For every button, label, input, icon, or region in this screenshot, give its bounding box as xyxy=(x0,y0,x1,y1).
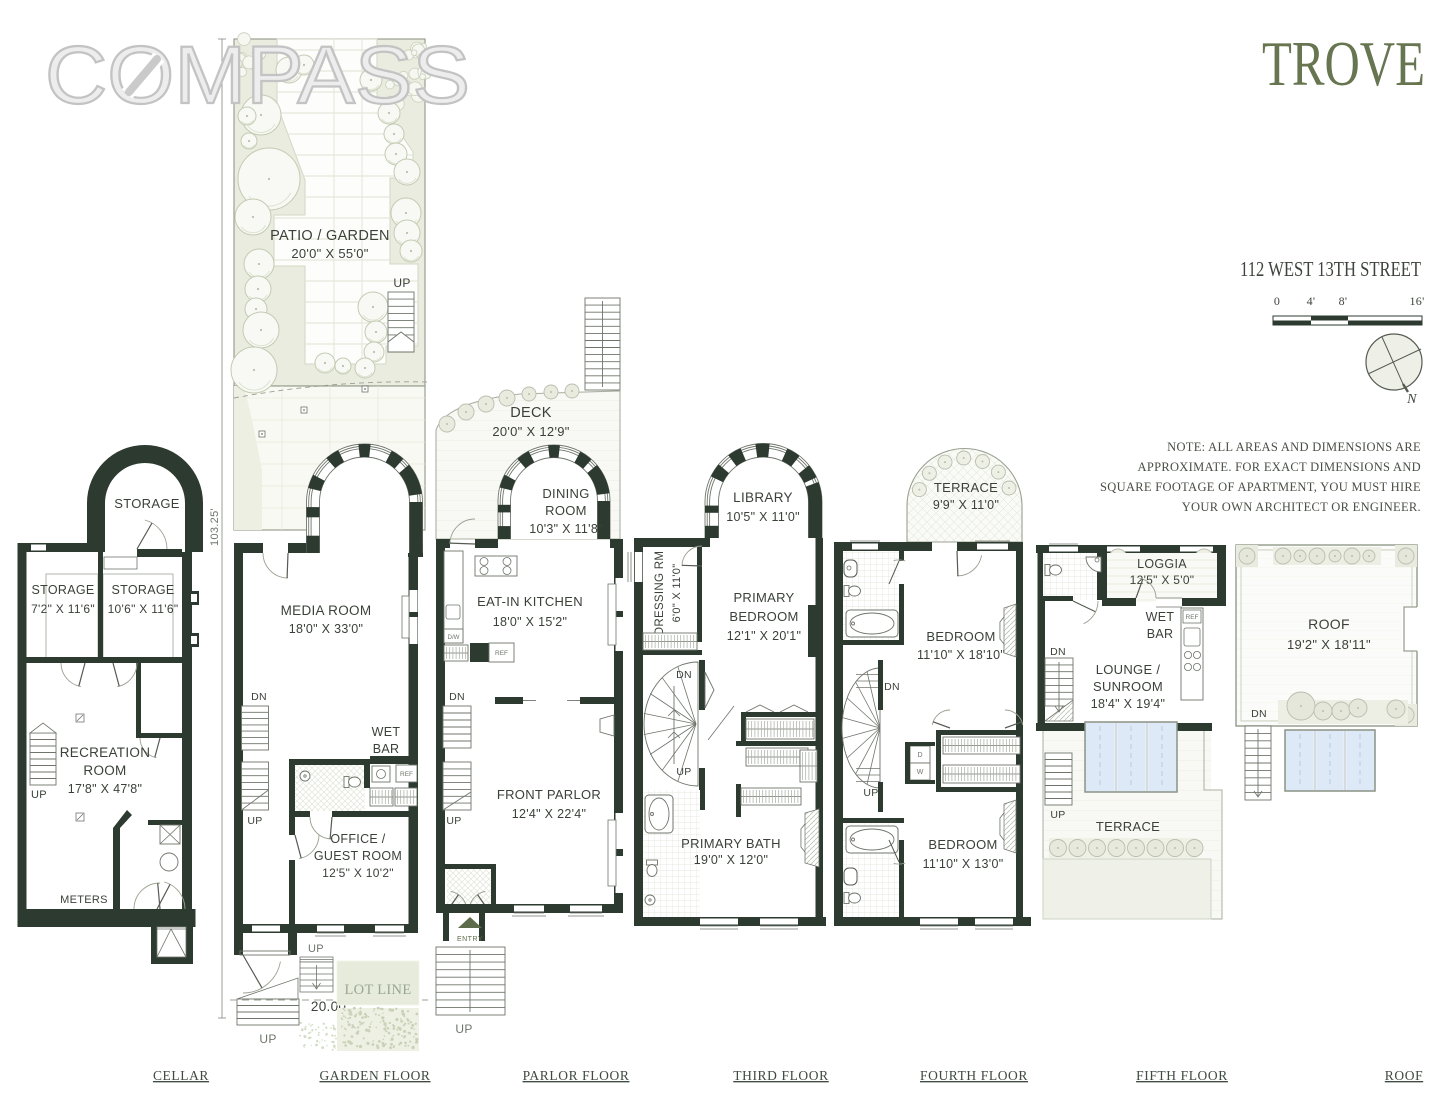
svg-text:TERRACE: TERRACE xyxy=(934,480,998,495)
svg-text:UP: UP xyxy=(676,766,691,778)
svg-text:12'5" X 10'2": 12'5" X 10'2" xyxy=(322,866,394,880)
svg-text:NOTE: ALL AREAS AND DIMENSIONS: NOTE: ALL AREAS AND DIMENSIONS ARE xyxy=(1167,440,1421,454)
svg-text:STORAGE: STORAGE xyxy=(114,496,179,511)
svg-text:METERS: METERS xyxy=(60,894,108,906)
svg-text:UP: UP xyxy=(1050,809,1065,821)
svg-text:DN: DN xyxy=(449,691,465,703)
svg-text:UP: UP xyxy=(393,276,410,290)
svg-text:COMPASS: COMPASS xyxy=(45,30,470,121)
svg-text:FRONT PARLOR: FRONT PARLOR xyxy=(497,787,601,802)
svg-text:UP: UP xyxy=(863,787,878,799)
svg-text:ENTRY: ENTRY xyxy=(457,936,483,943)
svg-text:DN: DN xyxy=(884,681,900,693)
svg-text:12'5" X 5'0": 12'5" X 5'0" xyxy=(1130,573,1195,587)
svg-text:16': 16' xyxy=(1409,294,1424,308)
svg-text:FOURTH FLOOR: FOURTH FLOOR xyxy=(920,1068,1028,1083)
svg-text:W: W xyxy=(917,769,924,776)
svg-text:10'6" X 11'6": 10'6" X 11'6" xyxy=(108,602,179,616)
svg-text:BEDROOM: BEDROOM xyxy=(926,629,995,644)
svg-text:DINING: DINING xyxy=(542,486,589,501)
svg-text:112 WEST 13TH STREET: 112 WEST 13TH STREET xyxy=(1240,257,1421,281)
svg-text:BEDROOM: BEDROOM xyxy=(928,837,997,852)
svg-text:DN: DN xyxy=(676,669,692,681)
svg-text:D/W: D/W xyxy=(447,634,459,641)
svg-text:REF: REF xyxy=(1186,614,1199,621)
svg-text:TERRACE: TERRACE xyxy=(1096,819,1160,834)
svg-text:DECK: DECK xyxy=(510,405,552,421)
svg-text:UP: UP xyxy=(446,815,461,827)
svg-text:BEDROOM: BEDROOM xyxy=(729,609,798,624)
svg-text:STORAGE: STORAGE xyxy=(112,583,175,597)
svg-text:20'0" X 55'0": 20'0" X 55'0" xyxy=(291,246,368,261)
svg-text:PATIO / GARDEN: PATIO / GARDEN xyxy=(270,228,390,244)
svg-text:PRIMARY: PRIMARY xyxy=(733,590,794,605)
svg-text:12'4" X 22'4": 12'4" X 22'4" xyxy=(512,807,587,821)
svg-text:ROOM: ROOM xyxy=(83,763,126,778)
svg-text:ROOF: ROOF xyxy=(1385,1068,1423,1083)
svg-text:BAR: BAR xyxy=(1147,627,1174,641)
svg-text:OFFICE /: OFFICE / xyxy=(330,832,385,846)
svg-text:REF: REF xyxy=(495,650,508,657)
svg-text:WET: WET xyxy=(372,725,401,739)
svg-text:YOUR OWN ARCHITECT OR ENGINEER: YOUR OWN ARCHITECT OR ENGINEER. xyxy=(1182,500,1421,514)
svg-text:FIFTH FLOOR: FIFTH FLOOR xyxy=(1136,1068,1228,1083)
svg-text:MEDIA ROOM: MEDIA ROOM xyxy=(281,603,372,618)
svg-text:PARLOR FLOOR: PARLOR FLOOR xyxy=(523,1068,630,1083)
svg-text:GARDEN FLOOR: GARDEN FLOOR xyxy=(319,1068,430,1083)
svg-text:LIBRARY: LIBRARY xyxy=(733,490,793,505)
svg-text:ROOM: ROOM xyxy=(545,503,587,518)
svg-text:DN: DN xyxy=(1050,646,1066,658)
svg-text:BAR: BAR xyxy=(373,742,400,756)
svg-text:WET: WET xyxy=(1146,610,1175,624)
svg-text:CELLAR: CELLAR xyxy=(153,1068,209,1083)
svg-text:LOUNGE /: LOUNGE / xyxy=(1096,662,1161,677)
svg-text:RECREATION: RECREATION xyxy=(60,745,151,760)
svg-text:10'5" X 11'0": 10'5" X 11'0" xyxy=(726,510,800,524)
svg-text:19'0" X 12'0": 19'0" X 12'0" xyxy=(694,853,769,867)
svg-text:103.25': 103.25' xyxy=(209,508,221,546)
svg-text:SUNROOM: SUNROOM xyxy=(1093,679,1163,694)
svg-text:20'0" X 12'9": 20'0" X 12'9" xyxy=(492,424,569,439)
svg-text:6'0" X 11'0": 6'0" X 11'0" xyxy=(671,564,683,623)
svg-text:18'4" X 19'4": 18'4" X 19'4" xyxy=(1091,697,1166,711)
svg-text:DRESSING RM: DRESSING RM xyxy=(654,551,666,635)
svg-text:10'3" X 11'8": 10'3" X 11'8" xyxy=(529,522,603,536)
svg-text:SQUARE FOOTAGE OF APARTMENT, Y: SQUARE FOOTAGE OF APARTMENT, YOU MUST HI… xyxy=(1100,480,1421,494)
svg-text:REF: REF xyxy=(400,771,413,778)
svg-text:18'0" X 15'2": 18'0" X 15'2" xyxy=(493,615,568,629)
svg-text:18'0" X 33'0": 18'0" X 33'0" xyxy=(289,622,364,636)
svg-text:17'8" X 47'8": 17'8" X 47'8" xyxy=(68,782,143,796)
svg-text:THIRD FLOOR: THIRD FLOOR xyxy=(733,1068,828,1083)
svg-text:11'10" X 13'0": 11'10" X 13'0" xyxy=(923,857,1004,871)
svg-text:D: D xyxy=(917,752,922,759)
svg-text:PRIMARY BATH: PRIMARY BATH xyxy=(681,836,781,851)
svg-text:11'10" X 18'10": 11'10" X 18'10" xyxy=(917,648,1005,662)
svg-text:7'2" X 11'6": 7'2" X 11'6" xyxy=(31,602,95,616)
svg-text:N: N xyxy=(1406,392,1417,407)
svg-text:0: 0 xyxy=(1274,294,1280,308)
svg-text:DN: DN xyxy=(1251,708,1267,720)
svg-text:UP: UP xyxy=(259,1032,276,1046)
svg-text:UP: UP xyxy=(455,1022,472,1036)
svg-text:UP: UP xyxy=(247,815,262,827)
svg-text:TROVE: TROVE xyxy=(1262,28,1425,99)
svg-text:GUEST ROOM: GUEST ROOM xyxy=(314,849,402,863)
svg-text:APPROXIMATE. FOR EXACT DIMENSI: APPROXIMATE. FOR EXACT DIMENSIONS AND xyxy=(1138,460,1421,474)
svg-text:19'2" X 18'11": 19'2" X 18'11" xyxy=(1287,637,1371,652)
svg-text:DN: DN xyxy=(251,691,267,703)
svg-text:4': 4' xyxy=(1307,294,1316,308)
svg-text:UP: UP xyxy=(31,789,47,801)
svg-text:ROOF: ROOF xyxy=(1308,616,1350,632)
svg-text:LOGGIA: LOGGIA xyxy=(1137,557,1187,571)
svg-text:LOT LINE: LOT LINE xyxy=(345,982,412,998)
svg-text:8': 8' xyxy=(1339,294,1348,308)
svg-text:STORAGE: STORAGE xyxy=(32,583,95,597)
svg-text:12'1" X 20'1": 12'1" X 20'1" xyxy=(727,629,802,643)
svg-text:EAT-IN KITCHEN: EAT-IN KITCHEN xyxy=(477,594,583,609)
svg-text:9'9" X 11'0": 9'9" X 11'0" xyxy=(933,498,999,512)
svg-text:UP: UP xyxy=(308,943,324,955)
